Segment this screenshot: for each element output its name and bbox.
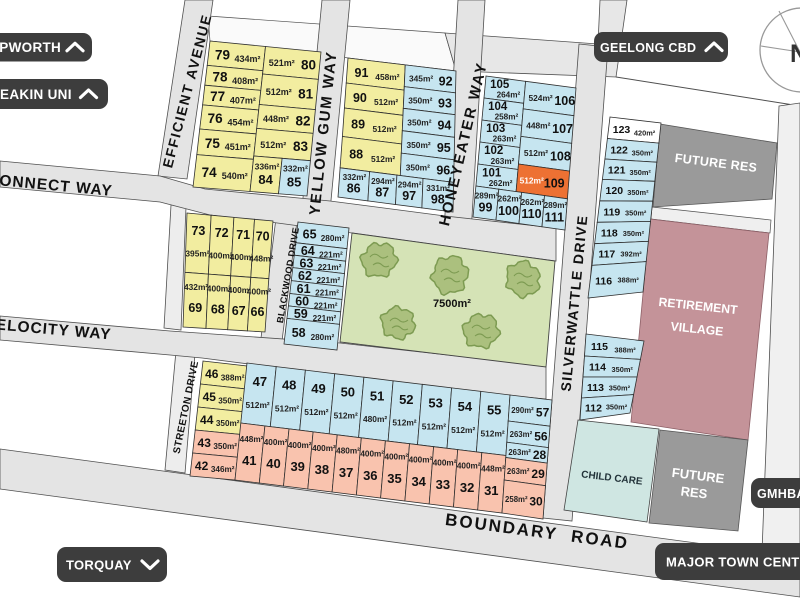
- svg-text:45: 45: [203, 390, 217, 404]
- svg-text:92: 92: [439, 74, 453, 88]
- svg-text:110: 110: [521, 207, 541, 221]
- svg-text:91: 91: [355, 66, 369, 80]
- svg-text:100: 100: [498, 204, 519, 218]
- svg-text:118: 118: [601, 227, 618, 239]
- svg-text:350m²: 350m²: [612, 365, 634, 374]
- svg-text:51: 51: [370, 388, 384, 403]
- svg-text:388m²: 388m²: [618, 275, 640, 284]
- svg-text:35: 35: [387, 471, 401, 486]
- svg-text:512m²: 512m²: [451, 425, 475, 435]
- svg-text:350m²: 350m²: [216, 419, 240, 428]
- svg-text:116: 116: [595, 275, 612, 287]
- svg-text:82: 82: [295, 114, 310, 129]
- svg-text:70: 70: [256, 230, 270, 244]
- svg-text:400m²: 400m²: [384, 453, 408, 462]
- svg-text:262m²: 262m²: [498, 195, 522, 204]
- svg-text:114: 114: [589, 362, 606, 374]
- svg-text:77: 77: [210, 89, 225, 104]
- svg-text:512m²: 512m²: [334, 411, 358, 421]
- svg-text:119: 119: [603, 206, 620, 218]
- svg-text:512m²: 512m²: [422, 421, 446, 431]
- svg-text:85: 85: [287, 175, 301, 190]
- svg-text:512m²: 512m²: [371, 154, 395, 164]
- svg-text:221m²: 221m²: [316, 276, 340, 285]
- svg-text:400m²: 400m²: [457, 462, 481, 471]
- svg-text:263m²: 263m²: [508, 448, 531, 457]
- svg-text:111: 111: [545, 210, 565, 224]
- svg-text:54: 54: [458, 399, 473, 414]
- svg-text:108: 108: [550, 150, 571, 164]
- svg-text:512m²: 512m²: [266, 87, 292, 97]
- svg-text:68: 68: [211, 303, 225, 317]
- svg-text:263m²: 263m²: [507, 467, 530, 476]
- svg-text:448m²: 448m²: [481, 465, 505, 474]
- svg-text:458m²: 458m²: [375, 72, 399, 82]
- svg-text:512m²: 512m²: [372, 124, 396, 134]
- svg-text:350m²: 350m²: [625, 209, 647, 218]
- svg-text:58: 58: [292, 326, 306, 340]
- svg-text:N: N: [790, 40, 800, 68]
- svg-text:55: 55: [487, 403, 501, 418]
- svg-text:395m²: 395m²: [185, 249, 209, 259]
- svg-text:73: 73: [191, 224, 205, 238]
- svg-text:350m²: 350m²: [213, 442, 237, 451]
- svg-text:36: 36: [363, 468, 377, 483]
- svg-text:388m²: 388m²: [614, 346, 636, 355]
- svg-text:81: 81: [298, 87, 314, 102]
- svg-text:112: 112: [585, 403, 602, 415]
- svg-text:42: 42: [195, 459, 209, 473]
- svg-text:GEELONG CBD: GEELONG CBD: [600, 41, 696, 55]
- svg-text:56: 56: [534, 429, 548, 443]
- svg-text:350m²: 350m²: [627, 188, 649, 197]
- svg-text:104: 104: [488, 101, 508, 113]
- svg-text:400m²: 400m²: [312, 444, 336, 453]
- svg-text:332m²: 332m²: [283, 164, 308, 174]
- svg-text:448m²: 448m²: [249, 254, 273, 264]
- svg-text:DEAKIN UNI: DEAKIN UNI: [0, 87, 72, 102]
- svg-text:76: 76: [208, 111, 224, 126]
- svg-text:93: 93: [438, 96, 452, 110]
- svg-text:88: 88: [349, 148, 363, 162]
- svg-text:400m²: 400m²: [264, 438, 288, 447]
- svg-text:392m²: 392m²: [620, 249, 642, 258]
- svg-text:512m²: 512m²: [260, 140, 286, 150]
- svg-text:480m²: 480m²: [363, 414, 387, 424]
- svg-text:512m²: 512m²: [480, 429, 504, 439]
- svg-text:350m²: 350m²: [632, 149, 654, 158]
- svg-text:263m²: 263m²: [493, 135, 517, 144]
- svg-text:37: 37: [339, 465, 353, 480]
- svg-text:99: 99: [479, 201, 493, 215]
- svg-text:345m²: 345m²: [409, 74, 433, 84]
- svg-text:350m²: 350m²: [606, 402, 628, 411]
- svg-text:84: 84: [258, 172, 273, 187]
- svg-text:113: 113: [587, 382, 604, 394]
- svg-text:69: 69: [188, 301, 202, 315]
- svg-text:94: 94: [437, 118, 451, 132]
- svg-text:65: 65: [303, 227, 317, 241]
- svg-text:33: 33: [436, 477, 450, 492]
- svg-text:521m²: 521m²: [269, 58, 295, 68]
- svg-text:512m²: 512m²: [520, 176, 544, 186]
- svg-text:350m²: 350m²: [408, 95, 432, 105]
- svg-text:103: 103: [486, 123, 505, 135]
- svg-text:74: 74: [202, 165, 218, 180]
- svg-text:512m²: 512m²: [374, 97, 398, 107]
- svg-text:448m²: 448m²: [526, 121, 550, 131]
- svg-text:101: 101: [482, 167, 502, 179]
- svg-text:451m²: 451m²: [225, 142, 251, 152]
- svg-text:336m²: 336m²: [255, 161, 280, 171]
- svg-text:MAJOR TOWN CENTRE: MAJOR TOWN CENTRE: [666, 555, 800, 570]
- svg-text:350m²: 350m²: [407, 117, 431, 127]
- svg-text:34: 34: [411, 474, 426, 489]
- svg-text:52: 52: [399, 392, 413, 407]
- svg-text:95: 95: [437, 141, 451, 155]
- svg-text:86: 86: [347, 182, 361, 196]
- svg-text:109: 109: [544, 177, 565, 191]
- svg-text:388m²: 388m²: [221, 373, 245, 382]
- svg-text:106: 106: [554, 94, 575, 108]
- svg-text:TORQUAY: TORQUAY: [66, 558, 132, 573]
- svg-text:448m²: 448m²: [240, 435, 264, 444]
- svg-text:105: 105: [490, 79, 510, 91]
- svg-text:263m²: 263m²: [491, 157, 515, 166]
- svg-text:46: 46: [205, 367, 219, 381]
- svg-text:420m²: 420m²: [634, 129, 656, 138]
- svg-text:400m²: 400m²: [360, 450, 384, 459]
- svg-text:123: 123: [613, 124, 631, 136]
- svg-text:540m²: 540m²: [222, 171, 248, 181]
- svg-text:28: 28: [533, 448, 547, 462]
- svg-text:258m²: 258m²: [495, 113, 519, 122]
- svg-text:350m²: 350m²: [630, 168, 652, 177]
- svg-text:66: 66: [251, 305, 265, 319]
- svg-text:407m²: 407m²: [230, 96, 256, 106]
- svg-text:512m²: 512m²: [245, 400, 269, 410]
- svg-text:53: 53: [428, 395, 442, 410]
- svg-text:262m²: 262m²: [489, 179, 513, 188]
- svg-text:280m²: 280m²: [321, 234, 345, 243]
- svg-text:512m²: 512m²: [524, 148, 548, 158]
- svg-text:120: 120: [606, 185, 624, 197]
- svg-text:350m²: 350m²: [406, 162, 430, 172]
- svg-text:524m²: 524m²: [528, 93, 552, 103]
- svg-text:258m²: 258m²: [505, 495, 528, 504]
- svg-text:30: 30: [529, 495, 543, 509]
- svg-text:43: 43: [198, 436, 212, 450]
- svg-text:32: 32: [460, 480, 474, 495]
- svg-text:280m²: 280m²: [311, 333, 335, 342]
- svg-text:454m²: 454m²: [227, 117, 253, 127]
- svg-text:50: 50: [341, 385, 355, 400]
- svg-text:78: 78: [212, 70, 228, 85]
- svg-text:289m²: 289m²: [475, 192, 499, 201]
- svg-text:31: 31: [484, 483, 498, 498]
- svg-text:262m²: 262m²: [521, 198, 545, 207]
- svg-text:400m²: 400m²: [288, 441, 312, 450]
- svg-text:350m²: 350m²: [623, 229, 645, 238]
- svg-text:GMHBA S: GMHBA S: [757, 487, 800, 501]
- svg-text:115: 115: [591, 341, 608, 353]
- svg-text:29: 29: [531, 467, 545, 481]
- svg-text:289m²: 289m²: [544, 201, 568, 210]
- svg-text:75: 75: [205, 136, 221, 151]
- svg-text:512m²: 512m²: [275, 403, 299, 413]
- svg-text:89: 89: [351, 118, 365, 132]
- svg-text:107: 107: [552, 122, 573, 136]
- svg-text:400m²: 400m²: [247, 287, 271, 297]
- svg-text:79: 79: [215, 47, 230, 62]
- svg-text:350m²: 350m²: [218, 396, 242, 405]
- svg-text:350m²: 350m²: [406, 140, 430, 150]
- svg-text:221m²: 221m²: [315, 289, 339, 298]
- svg-text:290m²: 290m²: [511, 406, 534, 415]
- svg-text:512m²: 512m²: [392, 418, 416, 428]
- svg-text:EPWORTH: EPWORTH: [0, 40, 61, 55]
- svg-text:67: 67: [232, 304, 246, 318]
- svg-text:400m²: 400m²: [409, 456, 433, 465]
- svg-text:448m²: 448m²: [263, 114, 289, 124]
- svg-text:102: 102: [484, 145, 503, 157]
- svg-text:97: 97: [402, 189, 416, 203]
- svg-text:480m²: 480m²: [336, 447, 360, 456]
- svg-text:49: 49: [311, 381, 325, 396]
- svg-text:39: 39: [290, 459, 304, 474]
- svg-text:40: 40: [266, 456, 280, 471]
- svg-text:432m²: 432m²: [184, 282, 208, 292]
- svg-text:38: 38: [315, 462, 329, 477]
- svg-text:71: 71: [236, 228, 250, 242]
- svg-text:57: 57: [536, 406, 550, 420]
- svg-text:346m²: 346m²: [211, 465, 235, 474]
- svg-text:408m²: 408m²: [232, 76, 258, 86]
- svg-text:62: 62: [298, 269, 312, 283]
- svg-text:72: 72: [215, 226, 229, 240]
- svg-text:400m²: 400m²: [433, 459, 457, 468]
- svg-text:117: 117: [598, 249, 615, 261]
- svg-text:264m²: 264m²: [497, 91, 521, 100]
- svg-text:121: 121: [608, 165, 626, 177]
- svg-text:83: 83: [293, 139, 309, 154]
- svg-text:263m²: 263m²: [510, 430, 533, 439]
- svg-text:512m²: 512m²: [304, 407, 328, 417]
- svg-text:7500m²: 7500m²: [433, 298, 471, 310]
- svg-text:44: 44: [200, 413, 214, 427]
- svg-text:90: 90: [353, 91, 367, 105]
- svg-text:47: 47: [253, 374, 267, 389]
- svg-text:350m²: 350m²: [609, 383, 631, 392]
- svg-text:48: 48: [282, 378, 296, 393]
- svg-text:41: 41: [242, 453, 256, 468]
- svg-text:434m²: 434m²: [234, 54, 260, 64]
- svg-text:87: 87: [375, 185, 389, 199]
- svg-text:80: 80: [301, 58, 316, 73]
- svg-text:122: 122: [610, 145, 628, 157]
